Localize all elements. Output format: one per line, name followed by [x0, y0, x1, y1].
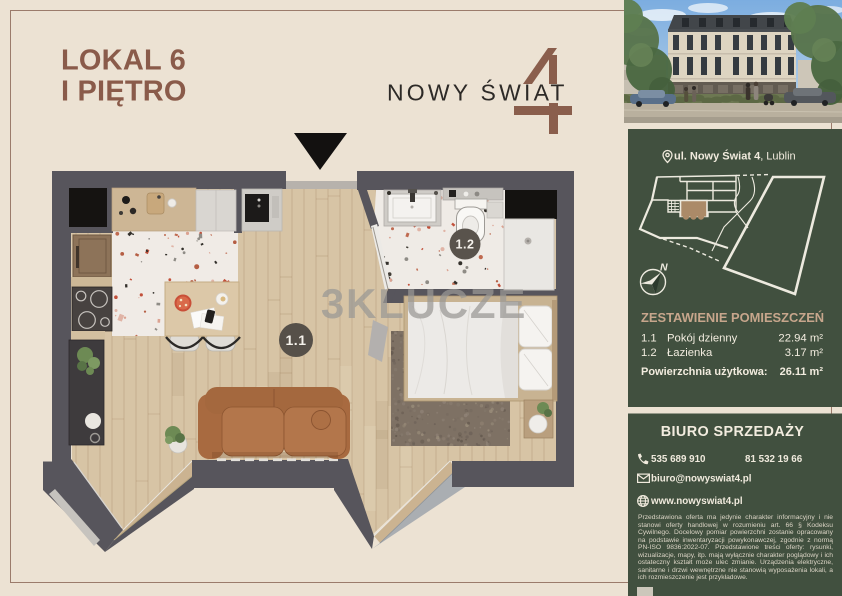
svg-text:22.94 m²: 22.94 m² [778, 332, 823, 344]
svg-text:NOWY ŚWIAT: NOWY ŚWIAT [387, 79, 568, 106]
svg-text:1.2: 1.2 [456, 238, 475, 252]
svg-text:biuro@nowyswiat4.pl: biuro@nowyswiat4.pl [651, 473, 752, 484]
svg-text:535 689 910: 535 689 910 [651, 454, 706, 465]
svg-text:N: N [660, 262, 668, 274]
svg-text:1.2: 1.2 [641, 347, 657, 359]
svg-text:ul. Nowy Świat 4, Lublin: ul. Nowy Świat 4, Lublin [674, 150, 796, 163]
svg-text:Pokój dzienny: Pokój dzienny [667, 332, 738, 344]
svg-text:ZESTAWIENIE POMIESZCZEŃ: ZESTAWIENIE POMIESZCZEŃ [641, 310, 824, 325]
svg-text:I PIĘTRO: I PIĘTRO [61, 76, 187, 108]
svg-text:1.1: 1.1 [286, 332, 307, 348]
svg-text:BIURO SPRZEDAŻY: BIURO SPRZEDAŻY [661, 423, 805, 440]
svg-text:LOKAL 6: LOKAL 6 [61, 45, 186, 77]
svg-text:3.17 m²: 3.17 m² [785, 347, 824, 359]
svg-text:Łazienka: Łazienka [667, 347, 713, 359]
svg-text:3KLUCZE: 3KLUCZE [321, 280, 527, 327]
svg-text:www.nowyswiat4.pl: www.nowyswiat4.pl [650, 496, 743, 507]
svg-text:81 532 19 66: 81 532 19 66 [745, 454, 803, 465]
svg-text:1.1: 1.1 [641, 332, 657, 344]
svg-text:Powierzchnia użytkowa:: Powierzchnia użytkowa: [641, 366, 768, 378]
svg-text:26.11 m²: 26.11 m² [780, 366, 824, 378]
